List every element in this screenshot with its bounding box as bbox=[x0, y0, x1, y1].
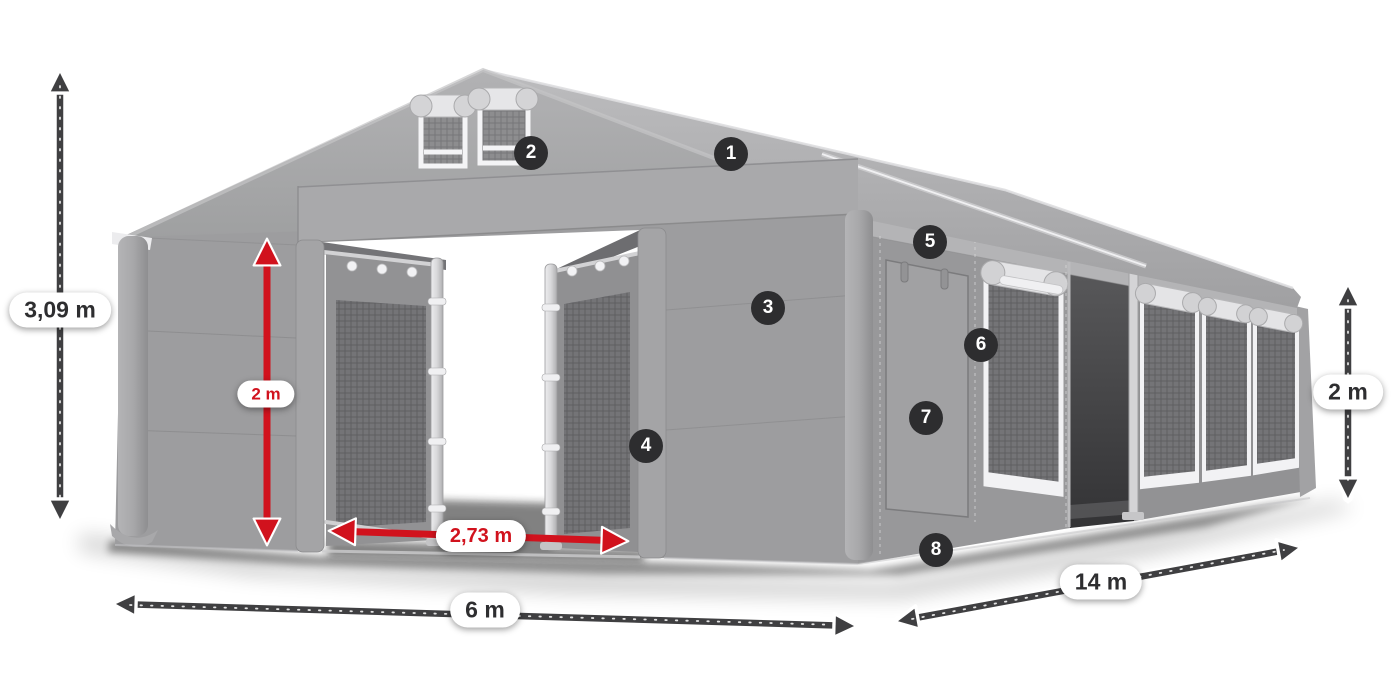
front-left-corner-column bbox=[118, 236, 148, 536]
feature-marker-3[interactable]: 3 bbox=[751, 291, 785, 325]
feature-marker-2[interactable]: 2 bbox=[514, 136, 548, 170]
window-rollup-tube bbox=[468, 88, 538, 110]
dimension-label-side-height: 2 m bbox=[1313, 375, 1383, 410]
front-right-corner-column bbox=[845, 210, 873, 560]
dimension-label-front-width: 6 m bbox=[450, 593, 520, 628]
tent-diagram: 3,09 m 2 m 2,73 m 6 m 14 m 2 m 1 2 3 4 5… bbox=[0, 0, 1400, 700]
dimension-label-door-height: 2 m bbox=[237, 381, 294, 408]
tent-illustration bbox=[0, 0, 1400, 700]
side-door-strap bbox=[941, 269, 948, 289]
feature-marker-6[interactable]: 6 bbox=[964, 328, 998, 362]
front-door-panel-right bbox=[550, 252, 640, 552]
middle-opening bbox=[1070, 258, 1134, 528]
door-post-left bbox=[296, 240, 324, 552]
rear-mesh-window-3 bbox=[1248, 306, 1304, 473]
feature-marker-5[interactable]: 5 bbox=[913, 225, 947, 259]
rear-mesh-window-1 bbox=[1134, 282, 1205, 487]
dimension-label-door-width: 2,73 m bbox=[436, 520, 526, 552]
side-door bbox=[886, 260, 968, 517]
dimension-label-total-height: 3,09 m bbox=[9, 293, 111, 328]
side-door-strap bbox=[901, 262, 908, 282]
feature-marker-4[interactable]: 4 bbox=[629, 429, 663, 463]
door-post-right bbox=[638, 228, 666, 558]
front-door-panel-left bbox=[324, 252, 438, 546]
feature-marker-1[interactable]: 1 bbox=[714, 137, 748, 171]
dimension-label-side-length: 14 m bbox=[1060, 565, 1142, 600]
feature-marker-7[interactable]: 7 bbox=[909, 401, 943, 435]
side-mesh-window bbox=[979, 259, 1070, 494]
feature-marker-8[interactable]: 8 bbox=[919, 533, 953, 567]
gable-window-left bbox=[410, 95, 476, 166]
window-rollup-tube bbox=[410, 95, 476, 117]
rear-mesh-window-2 bbox=[1197, 296, 1256, 480]
